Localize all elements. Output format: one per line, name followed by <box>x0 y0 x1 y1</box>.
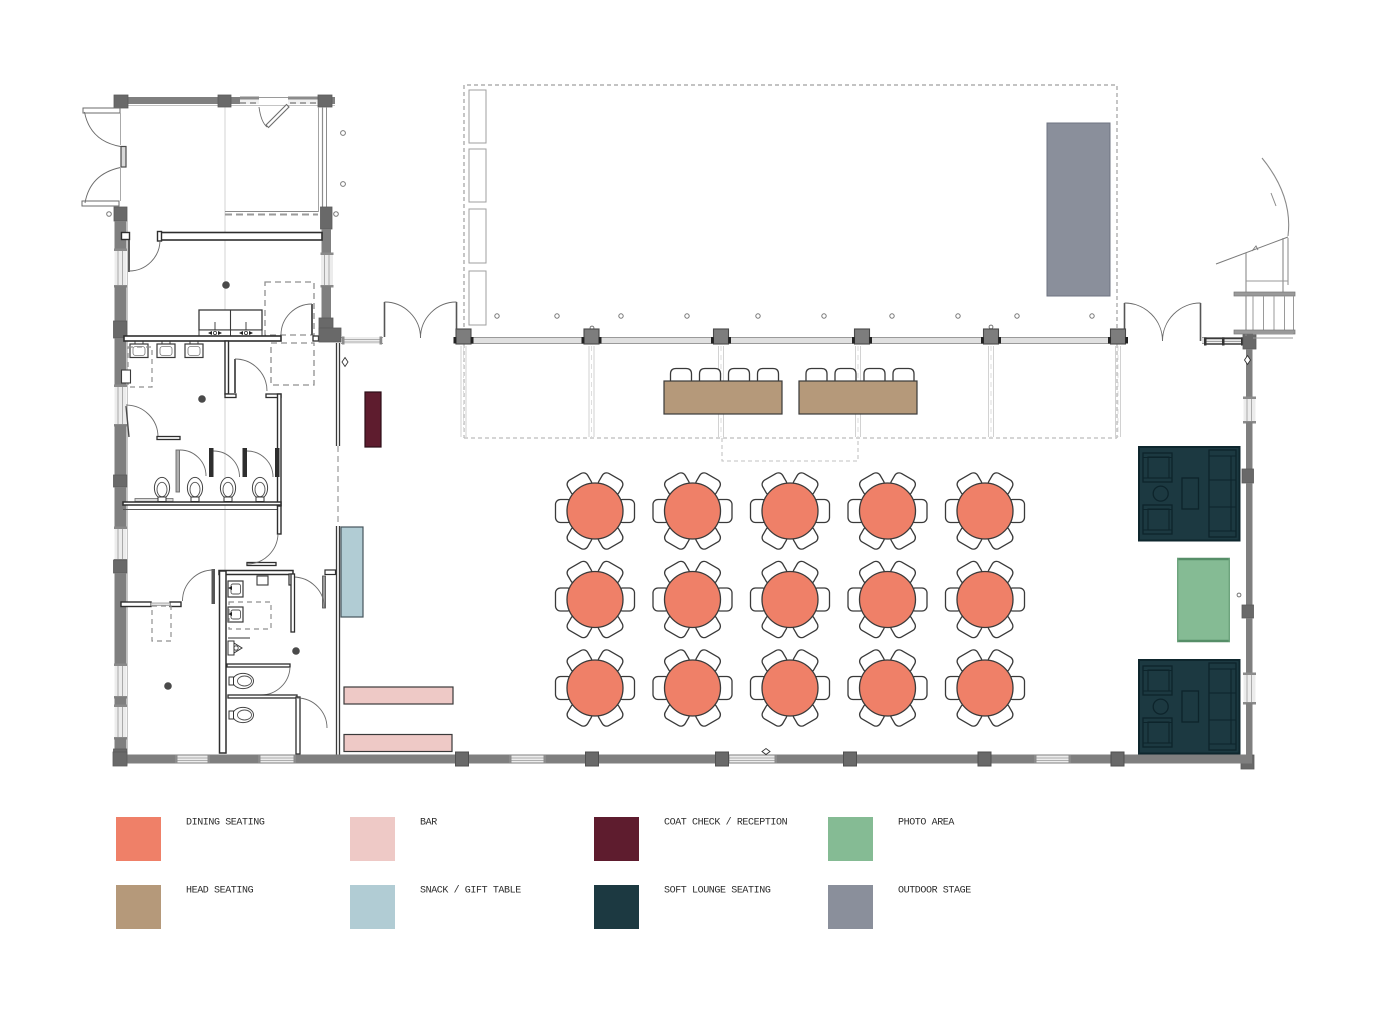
svg-text:COAT CHECK / RECEPTION: COAT CHECK / RECEPTION <box>664 817 788 829</box>
svg-text:HEAD SEATING: HEAD SEATING <box>186 886 254 897</box>
svg-text:BAR: BAR <box>420 818 437 829</box>
svg-text:DINING SEATING: DINING SEATING <box>186 818 265 829</box>
svg-text:OUTDOOR STAGE: OUTDOOR STAGE <box>898 886 971 897</box>
svg-text:SOFT LOUNGE SEATING: SOFT LOUNGE SEATING <box>664 886 771 897</box>
svg-text:SNACK / GIFT TABLE: SNACK / GIFT TABLE <box>420 885 521 897</box>
svg-text:PHOTO AREA: PHOTO AREA <box>898 818 954 829</box>
